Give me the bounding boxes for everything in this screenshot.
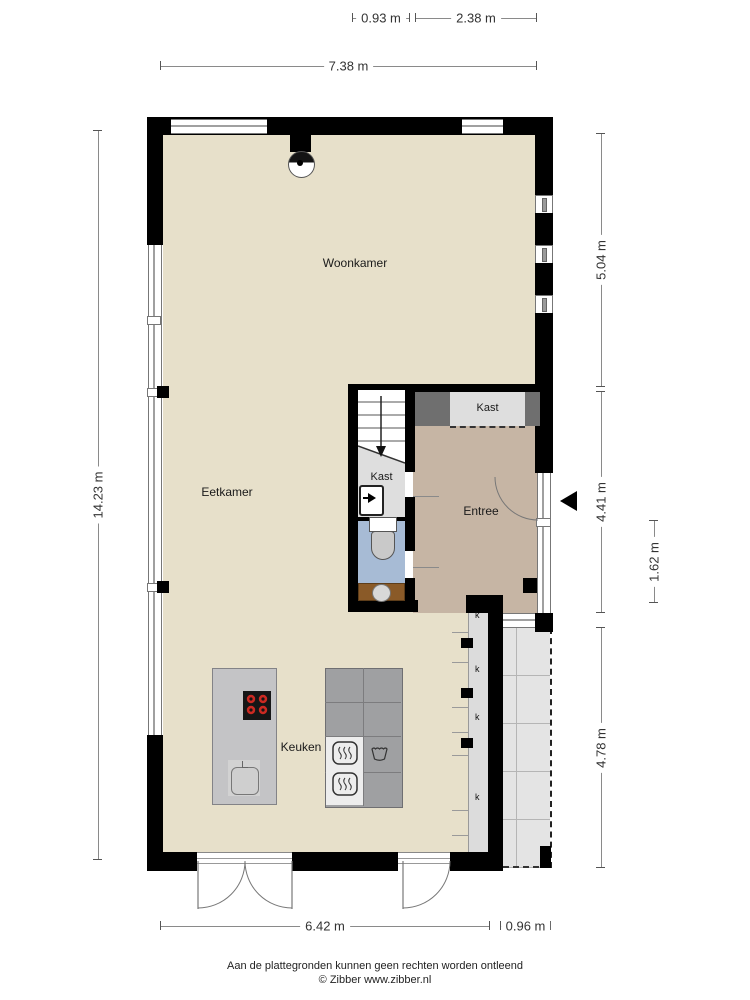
toilet-bowl-icon <box>371 531 395 560</box>
wall-right-seg <box>535 263 553 295</box>
wall-centerblock-left <box>348 390 358 612</box>
kast-dashed-front <box>450 424 525 428</box>
room-label-eetkamer: Eetkamer <box>177 485 277 499</box>
k-marker-3: k <box>475 712 480 722</box>
disclaimer-line1: Aan de plattegronden kunnen geen rechten… <box>0 959 750 973</box>
dim-top-small-left: 0.93 m <box>352 11 410 25</box>
dim-right-inner: 1.62 m <box>647 520 660 603</box>
island-faucet-icon <box>242 761 248 768</box>
entrance-arrow-icon <box>560 491 577 511</box>
wall-wc-right-mid <box>405 497 415 551</box>
k-marker-4: k <box>475 792 480 802</box>
window-right-2 <box>535 245 553 265</box>
window-entree-bottom <box>503 613 535 628</box>
room-label-keuken: Keuken <box>251 740 351 754</box>
kast-door-line <box>413 496 439 497</box>
counter-grid-v <box>363 668 364 806</box>
k-tick <box>452 835 468 836</box>
k-strip <box>468 613 488 852</box>
dim-top-small-right: 2.38 m <box>415 11 537 25</box>
window-right-1 <box>535 195 553 215</box>
k-marker-2: k <box>475 664 480 674</box>
k-wall-nub <box>461 688 473 698</box>
dim-top-total: 7.38 m <box>160 59 537 73</box>
room-label-kast-meter: Kast <box>358 471 405 483</box>
k-tick <box>452 732 468 733</box>
dim-right-upper: 5.04 m <box>594 133 607 387</box>
closet-block-left <box>415 392 450 426</box>
k-marker-1: k <box>475 610 480 620</box>
wc-door-line <box>413 567 439 568</box>
toilet-tank <box>369 517 397 532</box>
island-sink-icon <box>231 767 259 795</box>
terrace-grid-line <box>516 628 517 868</box>
oven-icon <box>332 772 358 796</box>
stove-flue <box>290 133 311 152</box>
terrace-tiles <box>503 628 550 868</box>
dim-left-total: 14.23 m <box>91 130 104 860</box>
window-top-right <box>462 119 503 134</box>
meter-box <box>359 485 384 516</box>
terrace-corner-wall <box>540 846 551 868</box>
k-tick <box>452 755 468 756</box>
k-tick <box>452 632 468 633</box>
wall-left-lower <box>147 735 163 871</box>
vanity-sink-icon <box>372 584 391 602</box>
facade-column <box>157 386 169 398</box>
stairs-detail <box>358 390 405 475</box>
counter-grid-h <box>325 702 401 703</box>
dim-right-lower: 4.78 m <box>594 627 607 868</box>
stove-center-dot <box>297 160 303 166</box>
wall-right-upper <box>535 117 553 195</box>
k-wall-nub <box>461 738 473 748</box>
meter-icon <box>361 487 378 510</box>
k-wall-nub <box>461 638 473 648</box>
closet-block-right <box>525 392 540 426</box>
wall-entree-corner <box>535 613 553 632</box>
k-tick <box>452 810 468 811</box>
disclaimer-text: Aan de plattegronden kunnen geen rechten… <box>0 959 750 987</box>
dim-bottom-main: 6.42 m <box>160 919 490 933</box>
wall-left-upper <box>147 117 163 245</box>
terrace-dashed-border-right <box>548 628 552 868</box>
facade-joint <box>147 316 161 325</box>
k-wall <box>487 595 503 857</box>
cooktop-icon <box>243 691 271 720</box>
single-door-arc <box>400 858 454 914</box>
facade-column <box>157 581 169 593</box>
room-label-entree: Entree <box>431 504 531 518</box>
dim-bottom-right: 0.96 m <box>500 919 551 933</box>
wall-right-seg <box>535 213 553 245</box>
basket-icon <box>370 745 389 763</box>
dim-right-middle: 4.41 m <box>594 391 607 613</box>
wall-right-kast <box>540 392 553 473</box>
k-tick <box>452 662 468 663</box>
wall-stairs-right <box>405 390 415 472</box>
double-door-arcs <box>195 858 295 914</box>
window-right-3 <box>535 295 553 315</box>
disclaimer-line2: © Zibber www.zibber.nl <box>0 973 750 987</box>
floorplan-page: Kast Kast k k k k <box>0 0 750 1000</box>
k-tick <box>452 707 468 708</box>
wall-entree-nub <box>523 578 537 593</box>
window-top-left <box>171 119 267 134</box>
room-label-kast-upper: Kast <box>450 402 525 414</box>
room-label-woonkamer: Woonkamer <box>305 256 405 270</box>
